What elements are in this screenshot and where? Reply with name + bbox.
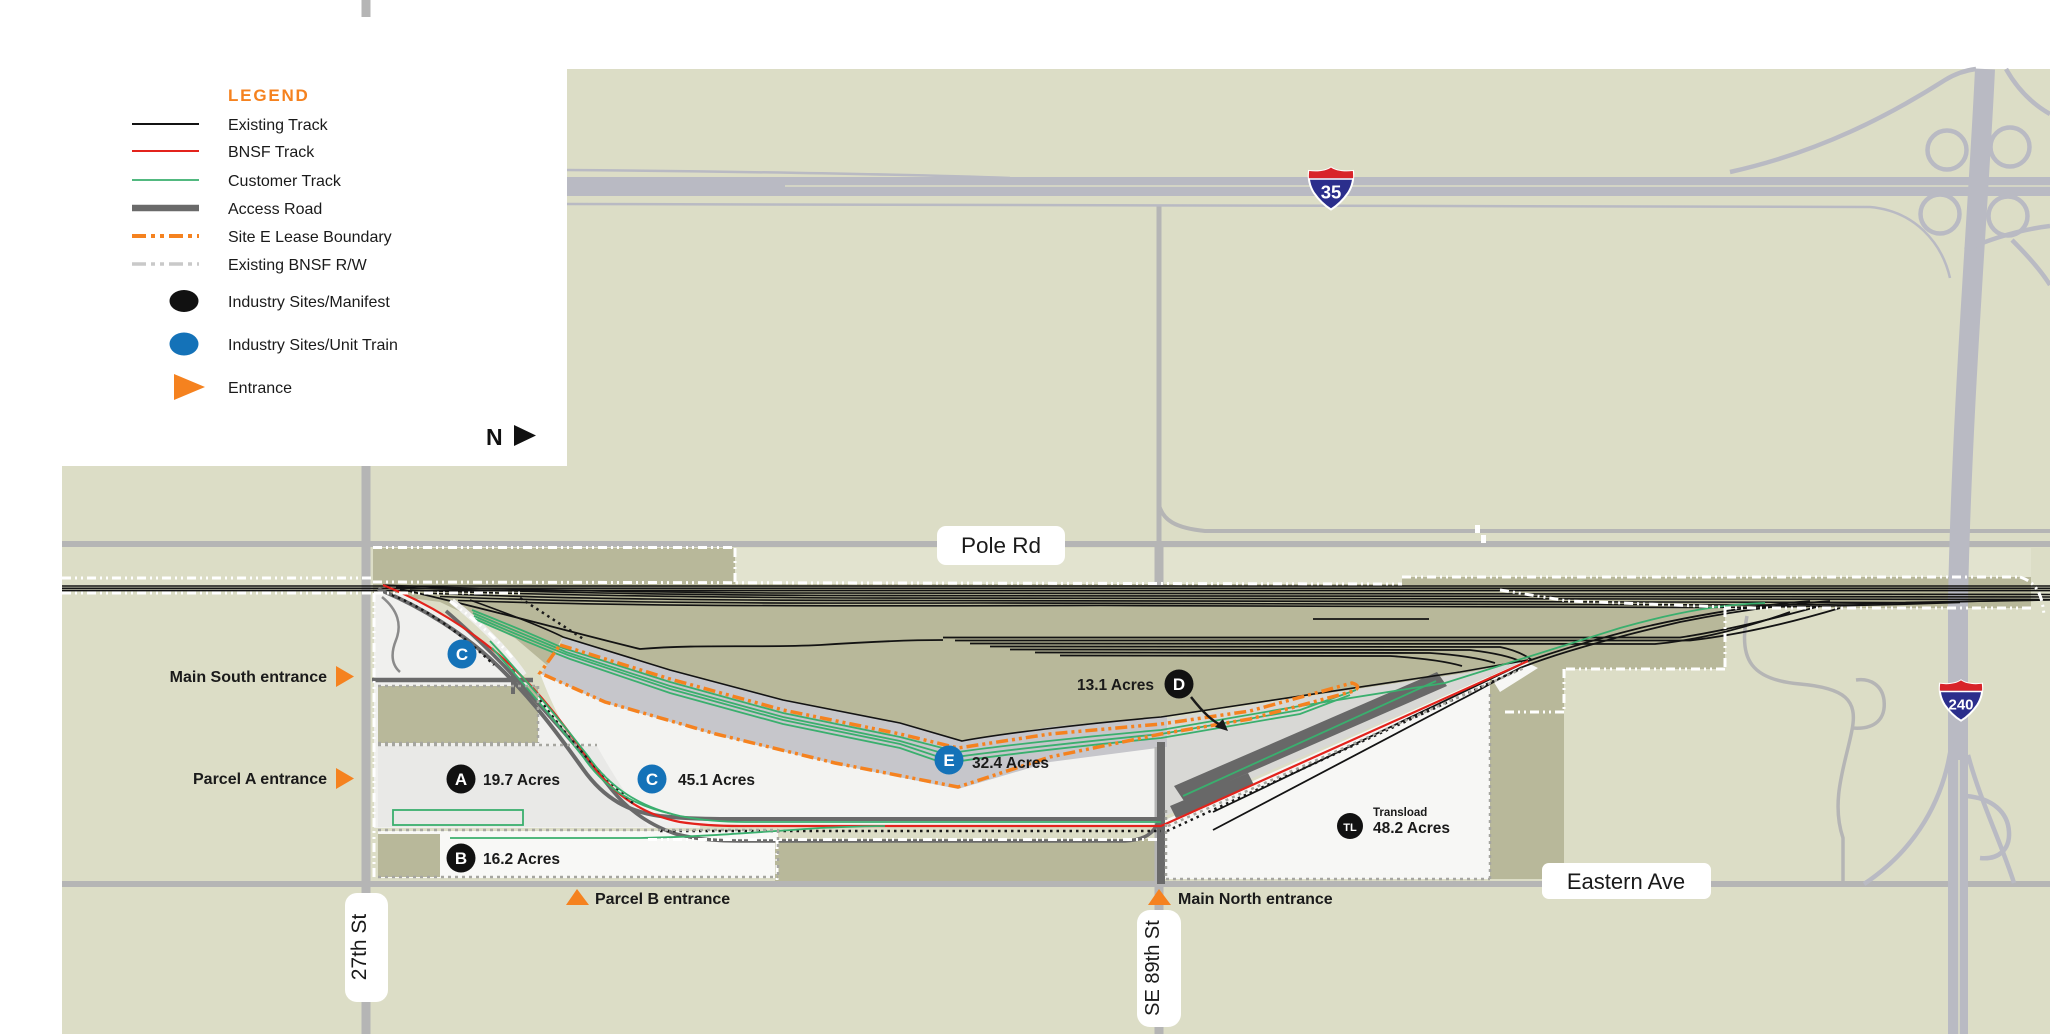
svg-text:N: N <box>486 424 503 450</box>
svg-text:13.1 Acres: 13.1 Acres <box>1077 677 1154 694</box>
svg-text:35: 35 <box>1321 182 1342 203</box>
svg-text:Entrance: Entrance <box>228 380 292 397</box>
svg-text:Site E Lease Boundary: Site E Lease Boundary <box>228 229 392 246</box>
svg-text:A: A <box>455 770 467 789</box>
svg-text:Industry Sites/Unit Train: Industry Sites/Unit Train <box>228 337 398 354</box>
svg-text:Main South entrance: Main South entrance <box>170 669 327 686</box>
svg-text:C: C <box>456 645 468 664</box>
svg-text:Transload: Transload <box>1373 807 1427 819</box>
svg-text:D: D <box>1173 675 1185 694</box>
svg-text:19.7 Acres: 19.7 Acres <box>483 772 560 789</box>
svg-text:32.4 Acres: 32.4 Acres <box>972 755 1049 772</box>
svg-text:Industry Sites/Manifest: Industry Sites/Manifest <box>228 294 390 311</box>
svg-text:C: C <box>646 770 658 789</box>
svg-text:LEGEND: LEGEND <box>228 86 310 105</box>
svg-text:TL: TL <box>1343 822 1357 834</box>
svg-text:Customer Track: Customer Track <box>228 173 342 190</box>
svg-text:240: 240 <box>1948 697 1973 714</box>
svg-text:Eastern Ave: Eastern Ave <box>1567 869 1685 894</box>
svg-text:Pole Rd: Pole Rd <box>961 533 1041 558</box>
svg-text:Parcel A entrance: Parcel A entrance <box>193 771 327 788</box>
svg-text:27th St: 27th St <box>348 914 371 981</box>
svg-text:B: B <box>455 849 467 868</box>
svg-text:Parcel B entrance: Parcel B entrance <box>595 891 730 908</box>
svg-text:Access Road: Access Road <box>228 201 322 218</box>
svg-text:BNSF Track: BNSF Track <box>228 144 315 161</box>
svg-text:16.2 Acres: 16.2 Acres <box>483 851 560 868</box>
svg-text:SE 89th St: SE 89th St <box>1142 920 1164 1016</box>
svg-text:Main North entrance: Main North entrance <box>1178 891 1333 908</box>
svg-text:E: E <box>943 751 954 770</box>
svg-text:Existing Track: Existing Track <box>228 117 329 134</box>
svg-text:45.1 Acres: 45.1 Acres <box>678 772 755 789</box>
svg-text:Existing BNSF R/W: Existing BNSF R/W <box>228 257 368 274</box>
svg-text:48.2 Acres: 48.2 Acres <box>1373 820 1450 837</box>
